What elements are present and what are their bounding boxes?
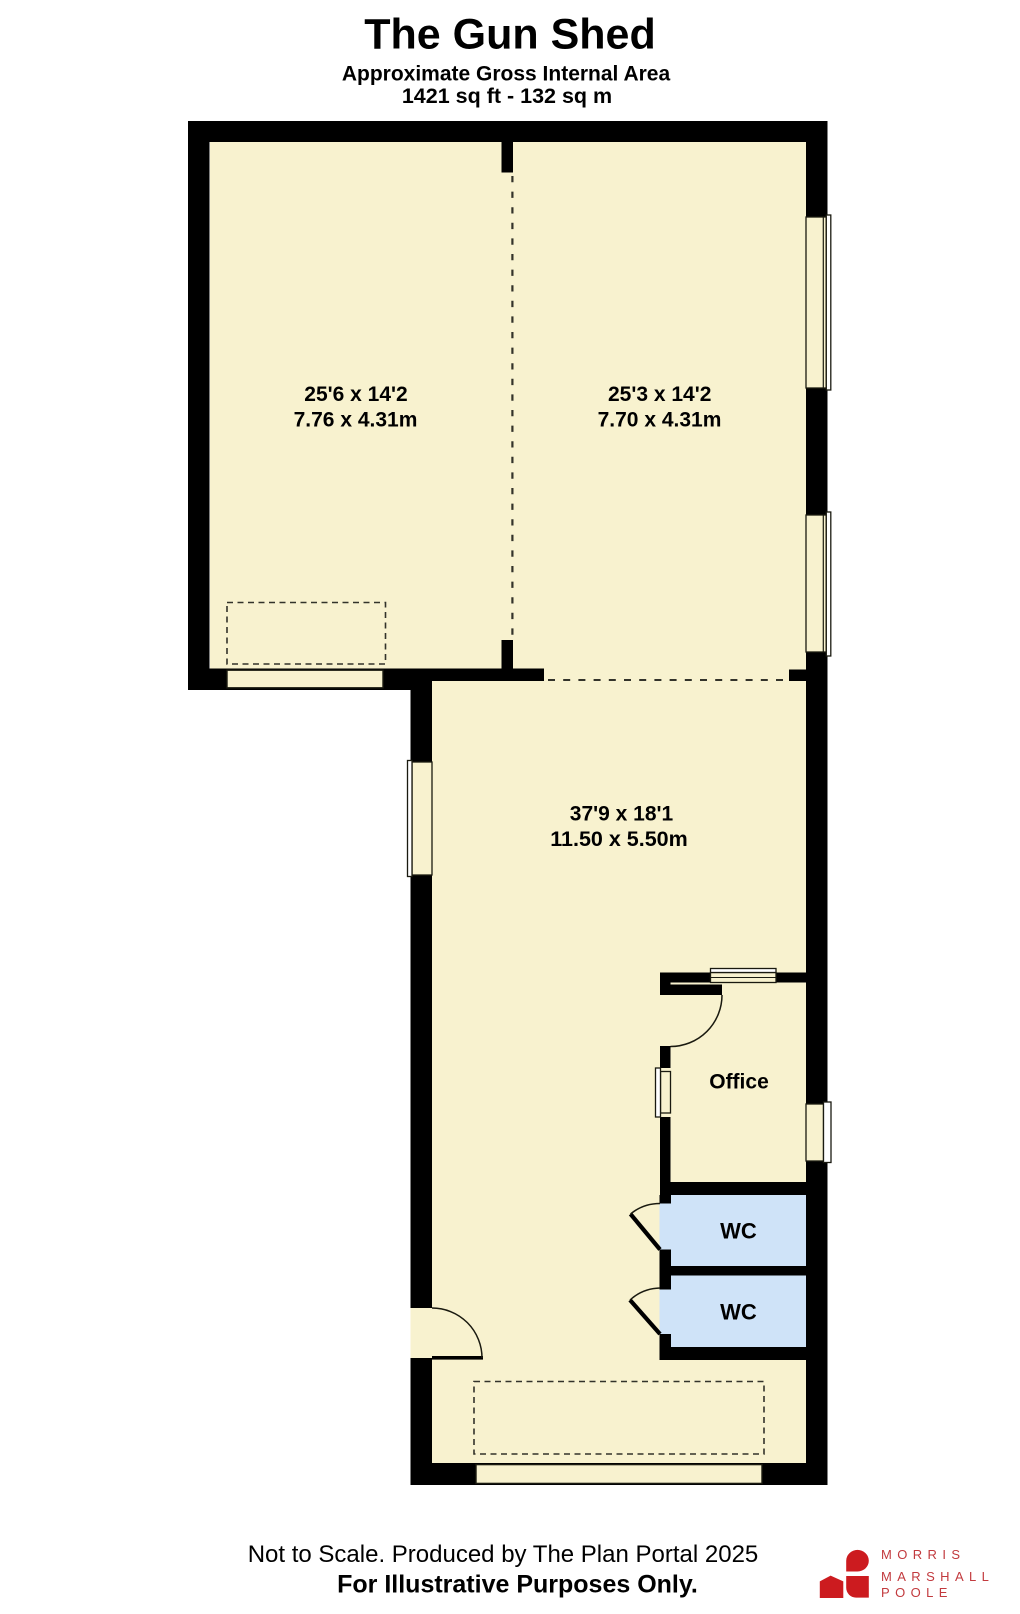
svg-text:MORRIS: MORRIS [881,1547,965,1562]
svg-text:WC: WC [720,1219,757,1244]
svg-text:7.76 x 4.31m: 7.76 x 4.31m [294,409,418,432]
svg-text:7.70 x 4.31m: 7.70 x 4.31m [598,409,722,432]
svg-text:37'9 x 18'1: 37'9 x 18'1 [570,803,674,826]
svg-text:25'3 x 14'2: 25'3 x 14'2 [608,383,711,406]
svg-text:The Gun Shed: The Gun Shed [364,11,655,59]
svg-text:Approximate Gross Internal Are: Approximate Gross Internal Area [342,63,671,86]
svg-text:POOLE: POOLE [881,1585,953,1600]
svg-text:For Illustrative Purposes Only: For Illustrative Purposes Only. [337,1571,698,1599]
svg-text:11.50 x 5.50m: 11.50 x 5.50m [550,827,687,851]
svg-text:1421 sq ft - 132 sq m: 1421 sq ft - 132 sq m [402,84,612,108]
svg-text:MARSHALL: MARSHALL [881,1569,994,1584]
svg-text:Not to Scale. Produced by The: Not to Scale. Produced by The Plan Porta… [248,1541,759,1568]
svg-text:25'6 x 14'2: 25'6 x 14'2 [304,383,407,406]
svg-text:WC: WC [720,1299,757,1324]
svg-text:Office: Office [709,1071,769,1094]
